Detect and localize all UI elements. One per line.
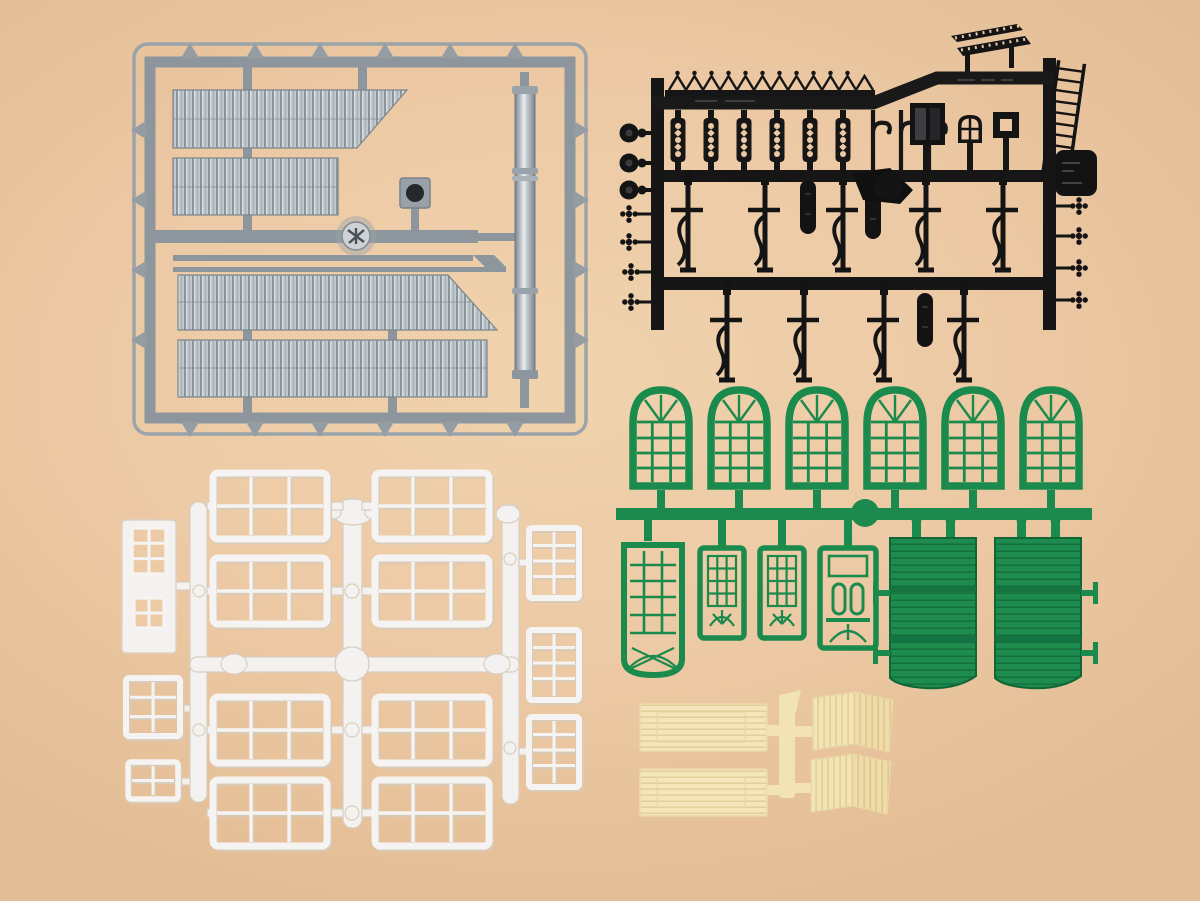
- wall-bracket: [986, 170, 1018, 270]
- window-frame-dark: [910, 103, 945, 170]
- large-window: [375, 473, 489, 539]
- cream-sprue: [633, 688, 918, 828]
- rosette: [1055, 291, 1088, 309]
- vent-wheel: [336, 216, 376, 256]
- medium-window-6pane: [126, 678, 180, 736]
- lamp-hook: [873, 110, 891, 170]
- door-white: [122, 520, 176, 653]
- planked-panels: [640, 704, 767, 816]
- planked-panel: [640, 769, 767, 816]
- rosette: [620, 233, 653, 251]
- gray-sprue-svg: [128, 30, 598, 445]
- rosette: [622, 263, 655, 281]
- large-window: [375, 697, 489, 763]
- left-small-windows: [126, 678, 182, 801]
- large-window: [213, 473, 327, 539]
- arched-window: [867, 390, 923, 486]
- large-window: [213, 697, 327, 763]
- gate-doors: [873, 515, 1098, 688]
- gate-door: [995, 515, 1081, 688]
- gray-sprue: [128, 30, 598, 445]
- large-window: [375, 558, 489, 624]
- wall-bracket: [787, 280, 819, 380]
- main-runners: [651, 58, 1056, 330]
- roof-crest: [665, 73, 875, 97]
- filigree-post: [803, 110, 818, 170]
- signal-discs: [620, 124, 660, 200]
- wall-bracket: [826, 170, 858, 270]
- filigree-post: [704, 110, 719, 170]
- folded-panels: [811, 692, 893, 814]
- wall-bracket: [909, 170, 941, 270]
- square-frame-black: [993, 112, 1019, 170]
- small-window-4pane: [128, 762, 178, 799]
- wall-bracket: [671, 170, 703, 270]
- arched-window: [1023, 390, 1079, 486]
- wall-bracket: [947, 280, 979, 380]
- white-sprue-svg: [112, 458, 602, 863]
- folded-plank-panel: [813, 692, 893, 752]
- scroll-brackets-bottom: [710, 280, 979, 380]
- twin-light-door: [820, 548, 876, 648]
- arched-window: [711, 390, 767, 486]
- wide-glazed-door: [624, 545, 682, 675]
- green-sprue-svg: [612, 383, 1097, 710]
- large-window: [213, 558, 327, 624]
- marking-plate: [1055, 150, 1097, 196]
- filigree-post: [770, 110, 785, 170]
- runner-bars: [148, 230, 515, 272]
- filigree-post: [836, 110, 851, 170]
- wall-bracket: [748, 170, 780, 270]
- glazed-door: [700, 548, 744, 638]
- filigree-post: [737, 110, 752, 170]
- planked-panel: [640, 704, 767, 751]
- rosette: [1055, 197, 1088, 215]
- small-windows-right: [529, 528, 581, 789]
- black-sprue-svg: [605, 18, 1105, 388]
- chimney-pipe: [512, 86, 538, 379]
- glazed-door: [760, 548, 804, 638]
- large-window: [213, 780, 327, 846]
- filigree-post: [671, 110, 686, 170]
- white-sprue: [112, 458, 602, 863]
- filigree-posts: [671, 110, 851, 170]
- scroll-brackets-middle: [671, 170, 1018, 270]
- rosette: [620, 205, 653, 223]
- rosette: [1055, 259, 1088, 277]
- rosettes-right: [1055, 197, 1088, 309]
- corrugated-panels: [173, 90, 497, 397]
- square-flange: [400, 178, 430, 208]
- black-sprue: [605, 18, 1105, 388]
- arched-window: [945, 390, 1001, 486]
- wall-bracket: [710, 280, 742, 380]
- rosettes-left: [620, 205, 655, 311]
- arched-windows: [633, 390, 1079, 486]
- arched-window: [789, 390, 845, 486]
- green-sprue: [612, 383, 1097, 710]
- arched-window: [633, 390, 689, 486]
- folded-plank-panel: [811, 754, 891, 814]
- product-photo: [0, 0, 1200, 901]
- rosette: [1055, 227, 1088, 245]
- arched-window-black: [958, 115, 982, 170]
- sign-paddles: [800, 180, 933, 347]
- wall-bracket: [867, 280, 899, 380]
- rosette: [622, 293, 655, 311]
- oval-sign: [800, 180, 816, 234]
- oval-sign: [917, 293, 933, 347]
- large-window: [375, 780, 489, 846]
- bench: [951, 24, 1031, 72]
- cream-sprue-svg: [633, 688, 918, 828]
- cream-runner: [767, 690, 815, 798]
- gate-door: [890, 515, 976, 688]
